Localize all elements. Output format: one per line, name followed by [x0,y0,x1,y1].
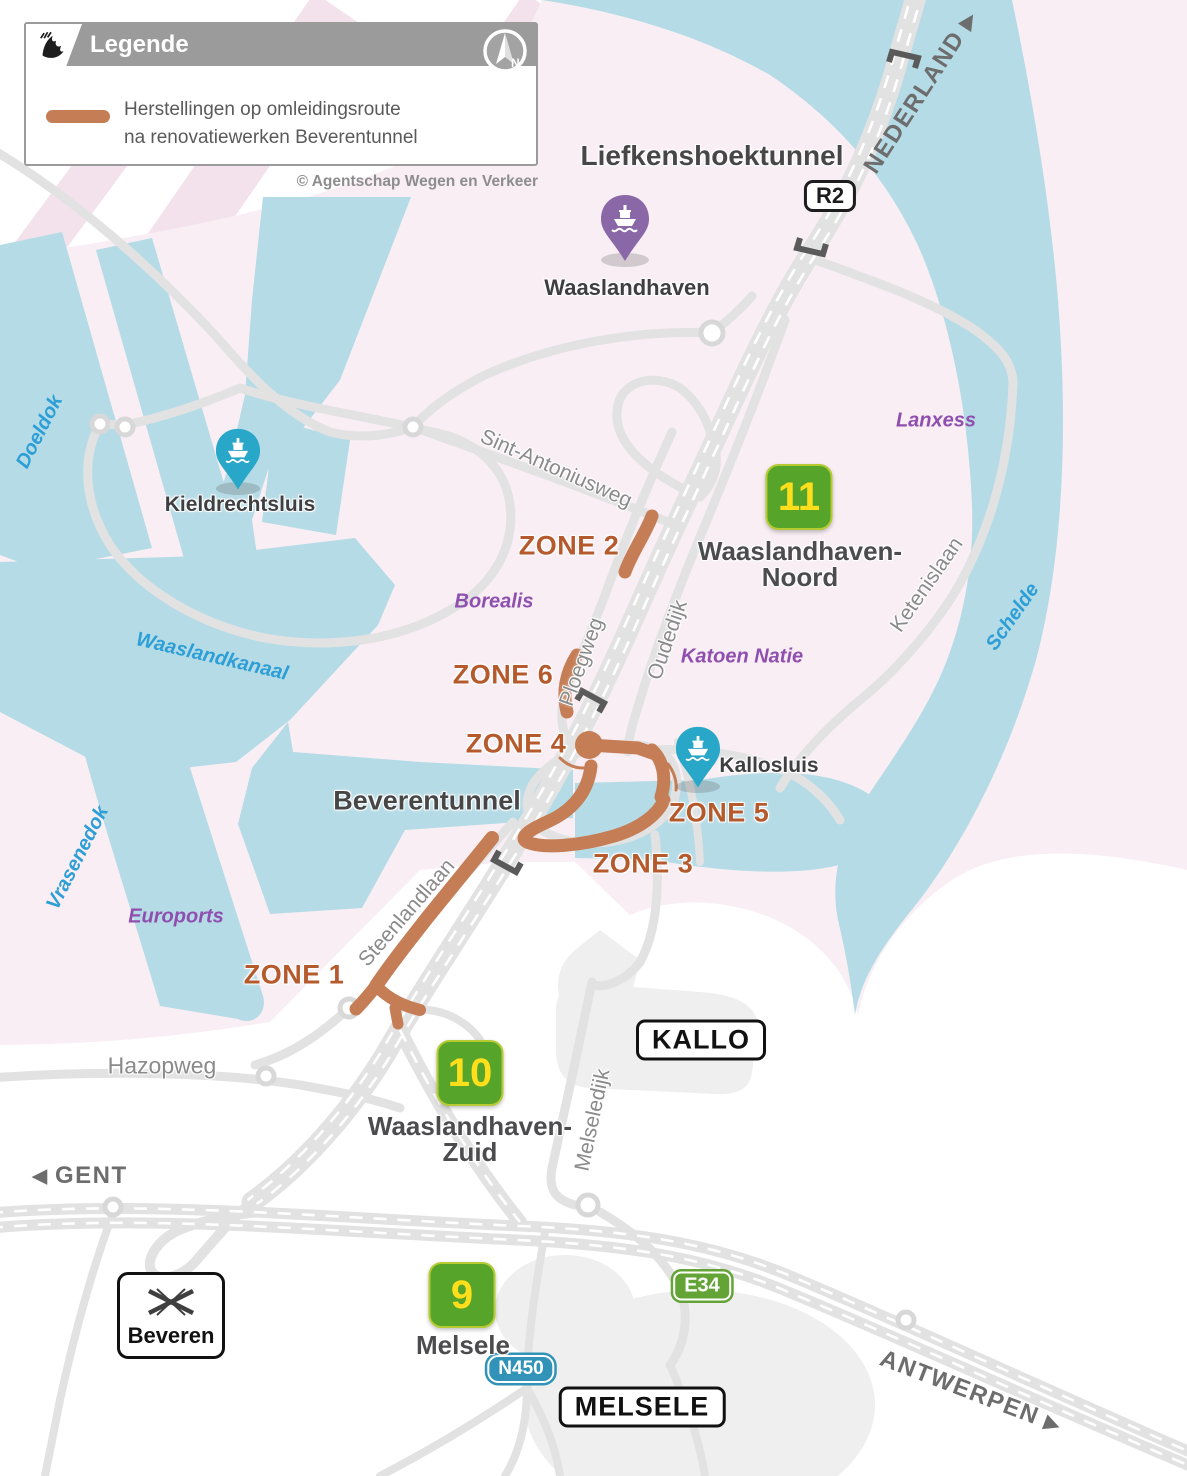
kallo-sign: KALLO [636,1020,766,1061]
liefkenshoektunnel-label: Liefkenshoektunnel [581,140,844,172]
basemap-graphics [0,0,1187,1476]
kieldrechtsluis-pin-label: Kieldrechtsluis [165,493,316,517]
exit-badge-9: 9 [429,1262,496,1328]
melsele-sign: MELSELE [559,1387,726,1428]
waaslandhaven-pin-label: Waaslandhaven [544,275,709,301]
exit-10-name: Waaslandhaven- Zuid [368,1113,572,1165]
compass-letter: N [511,56,520,70]
zone-1-stub [395,1008,398,1024]
compass-icon: N [482,28,528,79]
kallosluis-pin-label: Kallosluis [719,754,818,778]
direction-gent: ◀ GENT [32,1162,127,1190]
exit-badge-10: 10 [437,1040,504,1106]
beveren-sign-label: Beveren [128,1323,215,1349]
interchange-icon [145,1284,197,1320]
copyright-notice: © Agentschap Wegen en Verkeer [297,173,538,191]
legend-repair-line-swatch [46,110,110,123]
company-label-katoen-natie: Katoen Natie [681,646,803,669]
legend-item-repairs: Herstellingen op omleidingsroute na reno… [46,96,418,151]
zone-4-label: ZONE 4 [466,729,567,760]
exit-badge-11: 11 [766,464,833,530]
company-label-lanxess: Lanxess [896,410,976,433]
waaslandhaven-pin [598,193,652,272]
e34-road-badge: E34 [673,1272,731,1301]
zone-5-label: ZONE 5 [669,798,770,829]
map-canvas: Liefkenshoektunnel Beverentunnel NEDERLA… [0,0,1187,1476]
zone-1-label: ZONE 1 [244,960,345,991]
legend-title: Legende [90,31,189,59]
zone-6-label: ZONE 6 [453,660,554,691]
kallosluis-pin [673,725,723,798]
flanders-lion-logo-icon [26,24,82,66]
legend-panel: Legende N Herstellingen op omleidingsrou… [24,22,538,166]
zone-2-label: ZONE 2 [519,531,620,562]
company-label-borealis: Borealis [455,591,534,614]
gent-arrow-icon: ◀ [32,1165,47,1188]
r2-road-badge: R2 [804,180,856,212]
legend-item-text: Herstellingen op omleidingsroute na reno… [124,96,418,151]
kieldrechtsluis-pin [213,427,263,500]
exit-11-name: Waaslandhaven- Noord [698,538,902,590]
beverentunnel-label: Beverentunnel [333,786,521,817]
melsele-built-area-2 [495,1255,635,1365]
zone-3-label: ZONE 3 [593,849,694,880]
company-label-euroports: Euroports [128,906,224,929]
legend-header: Legende N [26,24,536,66]
road-label-hazopweg: Hazopweg [108,1053,217,1080]
gent-label: GENT [55,1162,128,1190]
beveren-interchange-sign: Beveren [117,1272,225,1359]
exit-9-name: Melsele [416,1332,510,1358]
